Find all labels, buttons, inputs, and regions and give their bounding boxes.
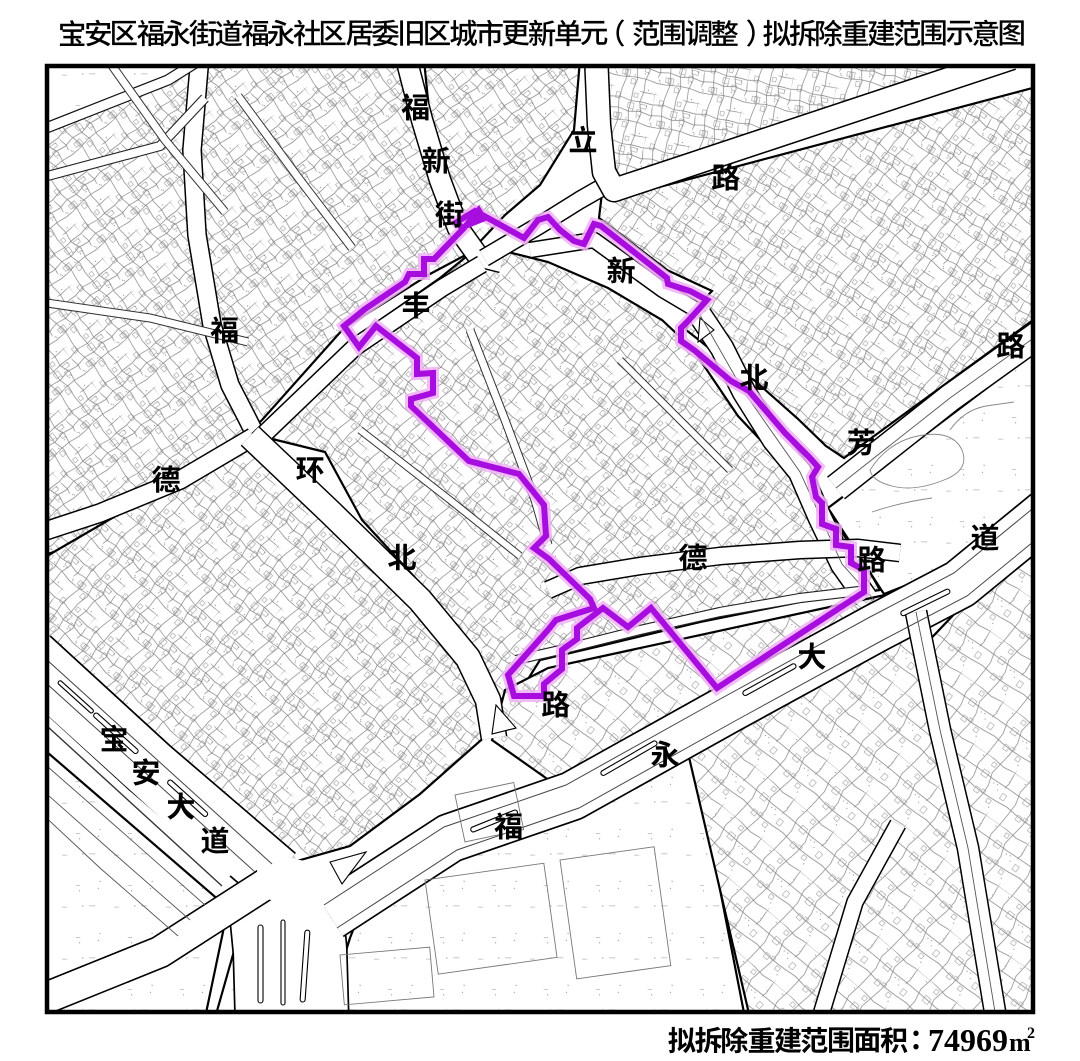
svg-text:2: 2 xyxy=(1027,1025,1035,1042)
svg-text:74969: 74969 xyxy=(928,1022,1008,1058)
